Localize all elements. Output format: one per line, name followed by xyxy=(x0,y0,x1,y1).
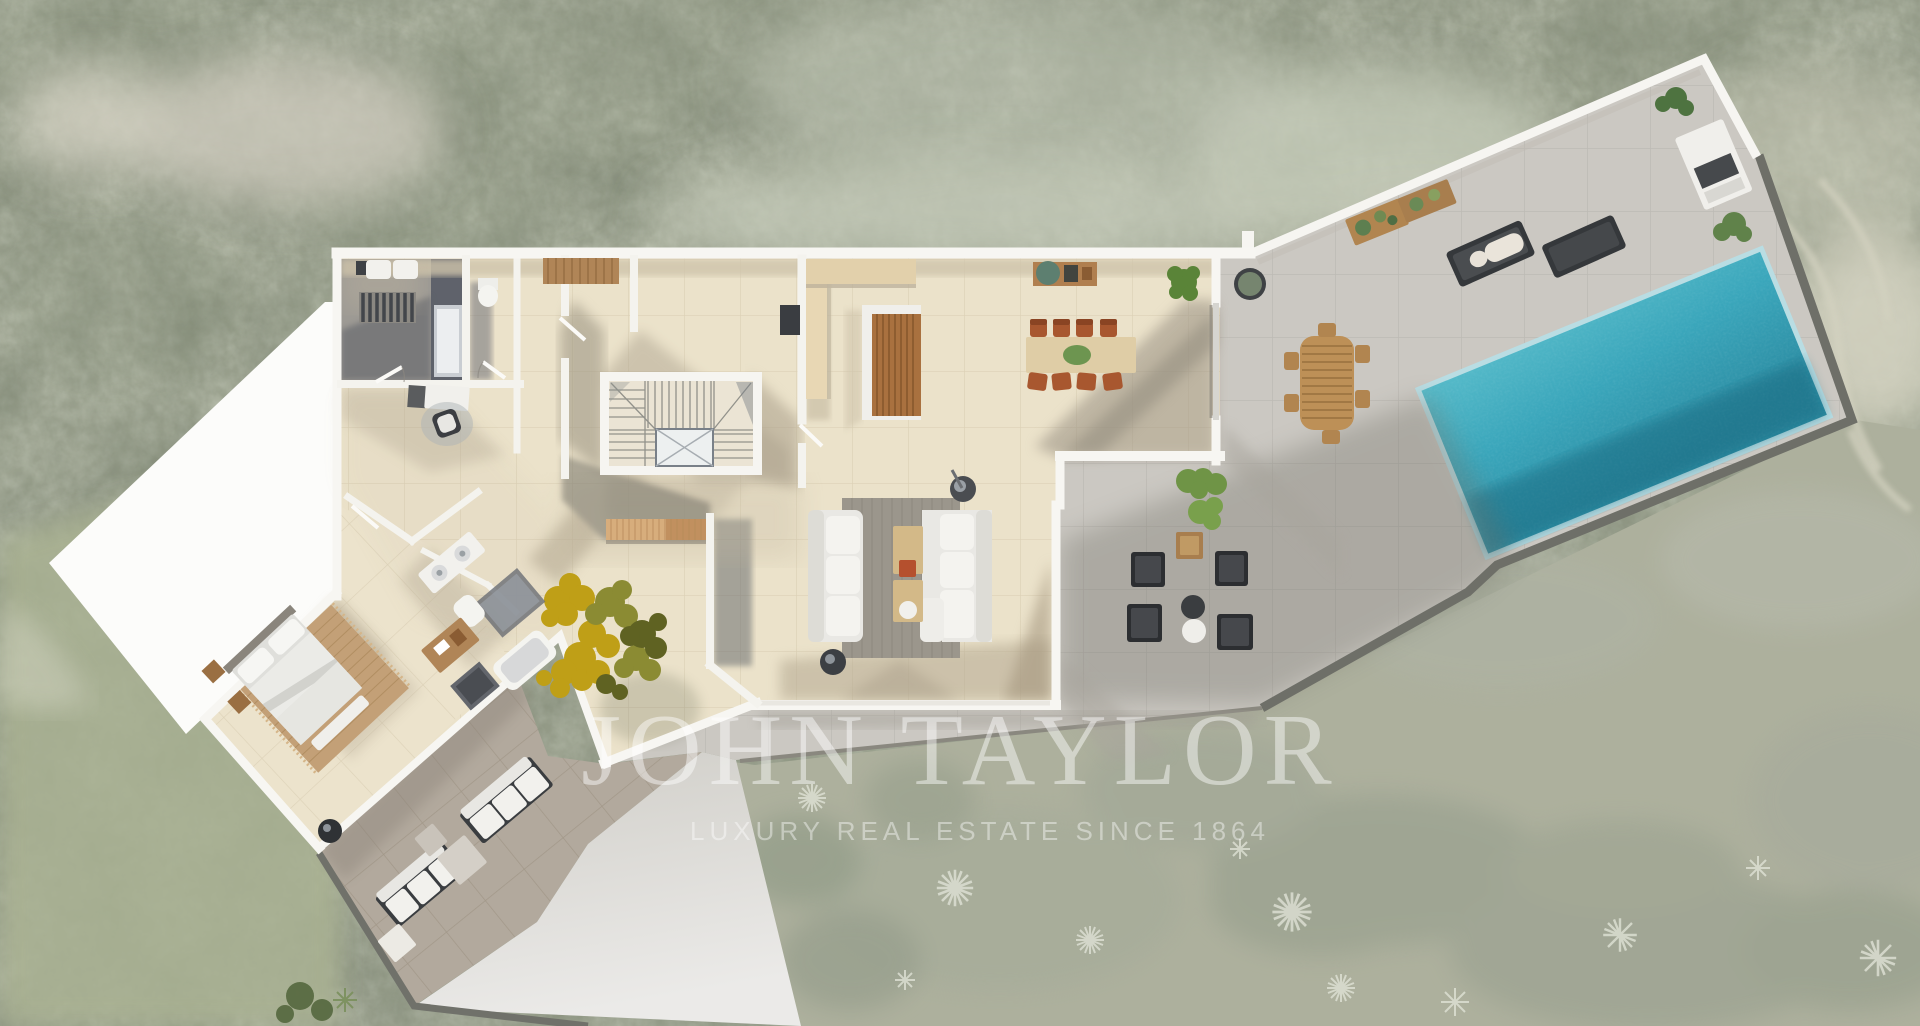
svg-text:JOHN TAYLOR: JOHN TAYLOR xyxy=(581,694,1338,807)
svg-text:LUXURY REAL ESTATE SINCE 1864: LUXURY REAL ESTATE SINCE 1864 xyxy=(690,816,1270,846)
